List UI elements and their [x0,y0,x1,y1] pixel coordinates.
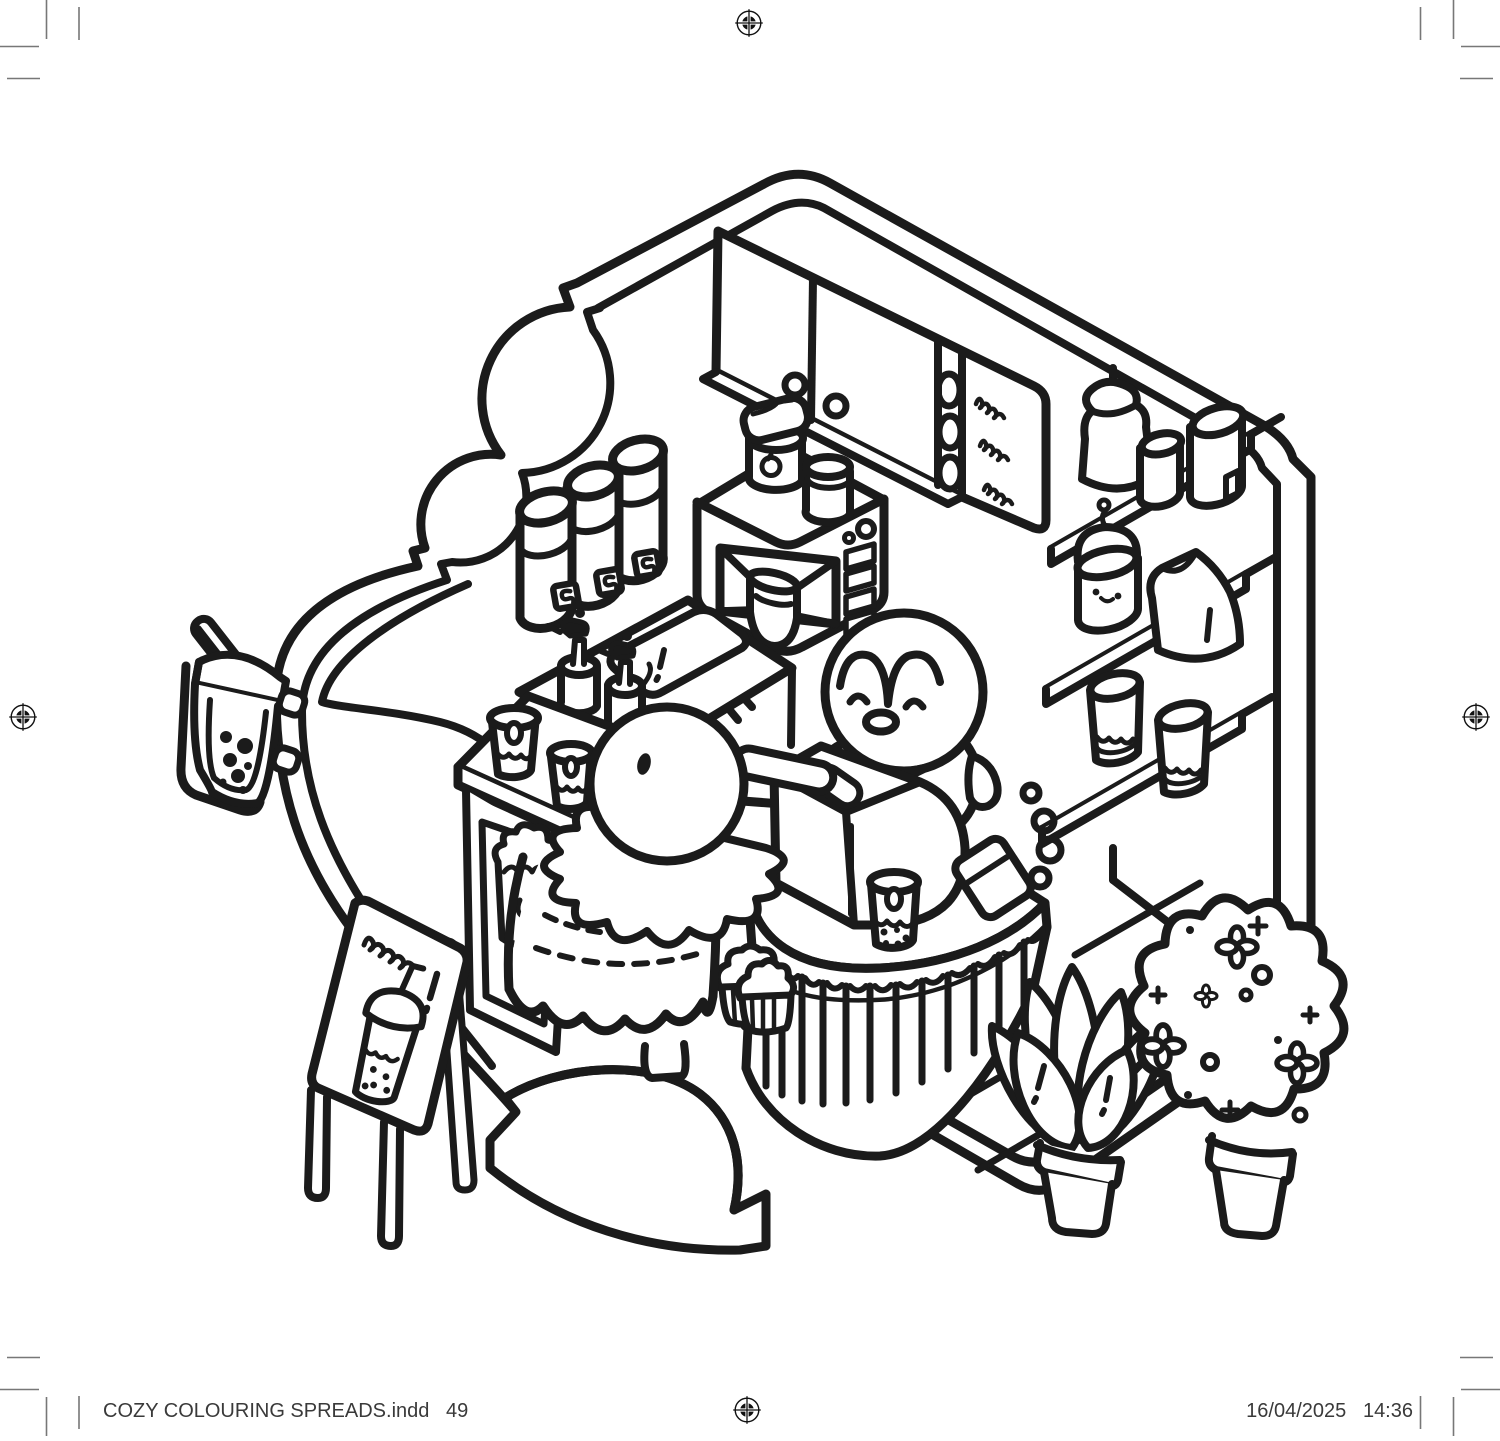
svg-text:COZY COLOURING SPREADS.indd: COZY COLOURING SPREADS.indd 49 [103,1400,468,1422]
svg-text:16/04/2025 14:36: 16/04/2025 14:36 [1246,1400,1413,1422]
